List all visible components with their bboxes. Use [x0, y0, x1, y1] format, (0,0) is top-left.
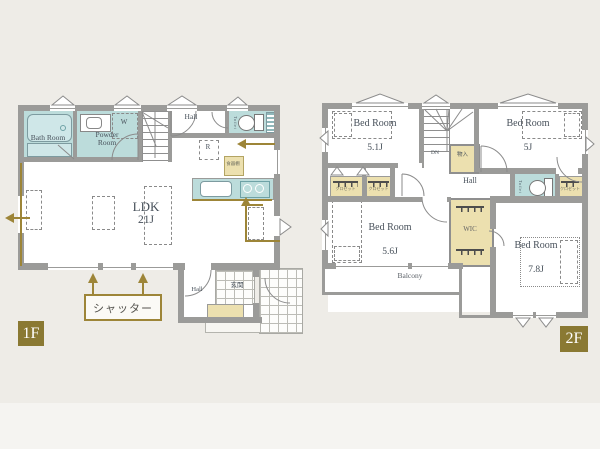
back-door-opening [274, 216, 280, 236]
balcony-wall [459, 269, 462, 318]
bed2-size: 5J [506, 143, 550, 154]
wall [178, 263, 184, 323]
window [322, 128, 328, 152]
f1-toilet-tank [254, 114, 264, 131]
bed2-label: Bed Room [506, 118, 550, 129]
shutter-arrow-line [92, 279, 94, 294]
wall [274, 105, 280, 270]
shutter-arrow-line [142, 279, 144, 294]
floor-tag-2f: 2F [560, 326, 588, 352]
wall [178, 317, 262, 323]
room-label-toilet-1f: Toilet [230, 112, 238, 133]
room-label-bath: Bath Room [30, 134, 66, 142]
wall [138, 111, 142, 162]
wall [490, 247, 496, 318]
closet-a-label: クロゼット [331, 187, 360, 191]
fridge-label: R [201, 144, 215, 152]
wall [168, 111, 172, 162]
wall [322, 196, 395, 202]
bed3-size: 5.6J [368, 247, 412, 258]
annotation-line [245, 205, 247, 242]
wic-label: WIC [451, 226, 489, 234]
wall [474, 109, 479, 172]
balcony-wall [459, 315, 496, 318]
wall [253, 303, 259, 323]
room-label-powder: Powder Room [84, 131, 130, 148]
window [114, 105, 141, 111]
f1-sofa [92, 196, 115, 230]
f1-toilet-bowl [238, 115, 255, 131]
annotation-line [245, 204, 263, 206]
window [352, 103, 408, 109]
f1-bathtub-drain [60, 125, 66, 131]
window [50, 105, 75, 111]
wall [24, 157, 140, 162]
ldk-size-label: 21J [124, 214, 168, 227]
f1-stairs [142, 111, 170, 162]
closet-c-label: クロゼット [559, 187, 581, 191]
cupboard-label: 食器棚 [225, 161, 241, 166]
entrance-label: 玄関 [226, 282, 248, 289]
window [536, 312, 556, 318]
wall [253, 263, 259, 277]
f2-stairs [423, 109, 450, 153]
door-opening [185, 263, 211, 270]
window [336, 263, 408, 269]
wall [362, 168, 366, 196]
wall [170, 133, 274, 138]
window [498, 103, 558, 109]
wall [447, 197, 451, 202]
f1-stove-burner [243, 184, 252, 193]
bath-label-text: Bath Room [31, 133, 65, 142]
wall [419, 109, 424, 168]
room-label-toilet-2f: Toilet [515, 176, 523, 198]
window [274, 150, 280, 174]
door-opening [398, 163, 422, 168]
stairs-dn-label: DN [425, 150, 445, 156]
balcony-wall [322, 292, 462, 295]
bottom-background-band [0, 403, 600, 449]
counter-accent-line [192, 199, 272, 201]
f1-porch-tiles [259, 268, 303, 334]
f1-pantry-shelf [248, 207, 264, 240]
pantry-arrow-line [243, 143, 275, 145]
closet-b-label: クロゼット [366, 187, 391, 191]
room-label-hall-upper: Hall [178, 113, 204, 121]
floor-plan-canvas: Bath Room Powder Room Hall Toilet W R 食器… [0, 0, 600, 449]
f1-bath-deck [27, 143, 72, 157]
shutter-arrow-line [10, 217, 30, 219]
f2-toilet-bowl [529, 180, 546, 196]
f2-bed2-pillow [564, 113, 580, 137]
bed4-label: Bed Room [514, 240, 558, 251]
wic-hanger-rod [456, 206, 484, 213]
window [48, 263, 98, 270]
f2-bed3-pillow [334, 246, 360, 261]
annotation-line [245, 240, 280, 242]
f1-vanity-sink [86, 117, 102, 129]
window [322, 220, 328, 250]
window [103, 263, 131, 270]
ldk-label: LDK [124, 200, 168, 215]
f1-kitchen-sink [200, 181, 232, 197]
washer-label: W [116, 119, 132, 127]
hall2-label: Hall [450, 177, 490, 186]
wall [225, 111, 229, 138]
f1-tv-board [26, 190, 42, 230]
storage-label: 物入 [449, 152, 476, 158]
window [227, 105, 248, 111]
wall [395, 197, 422, 202]
door-opening [422, 197, 447, 202]
window [513, 312, 533, 318]
wall [555, 174, 559, 196]
window [422, 103, 450, 109]
f2-bed4-pillow [560, 240, 578, 284]
powder-label-text: Powder Room [90, 131, 124, 148]
door-opening [556, 168, 578, 174]
wall [490, 197, 496, 229]
bed3-label: Bed Room [368, 222, 412, 233]
room-label-hall-entry: Hall [186, 286, 208, 293]
shutter-annotation: シャッター [84, 294, 162, 321]
shutter-line [20, 163, 22, 266]
wall [390, 168, 395, 196]
f1-stove-burner [255, 184, 264, 193]
bed4-size: 7.8J [514, 265, 558, 276]
wall [73, 111, 77, 162]
window [167, 105, 197, 111]
wall [490, 196, 588, 203]
bed1-size: 5.1J [353, 143, 397, 154]
window [412, 263, 448, 269]
balcony-label: Balcony [388, 272, 432, 280]
window [136, 263, 173, 270]
f2-bed1-pillow [334, 113, 352, 137]
floor-tag-1f: 1F [18, 321, 44, 346]
bed1-label: Bed Room [353, 118, 397, 129]
wic-hanger-rod [456, 249, 484, 256]
window [582, 130, 588, 154]
f1-entry-step [205, 322, 261, 333]
